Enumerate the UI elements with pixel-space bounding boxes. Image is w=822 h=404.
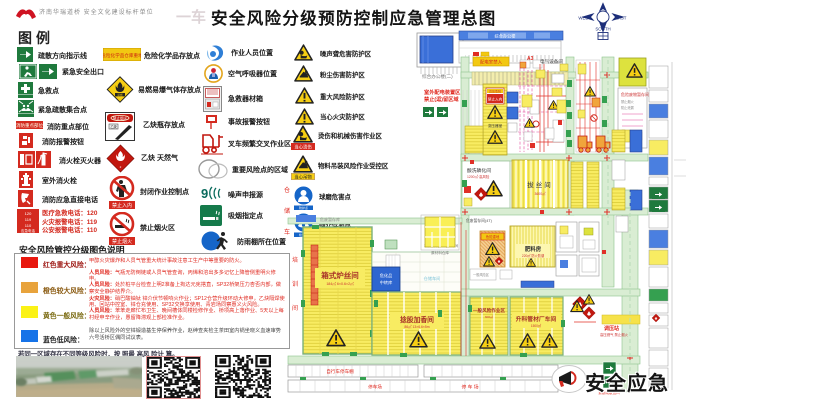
svg-text:高压燃气 禁止烟火: 高压燃气 禁止烟火 — [600, 332, 629, 337]
svg-text:A3: A3 — [527, 56, 534, 62]
svg-text:高压危险: 高压危险 — [489, 88, 501, 93]
svg-text:危险废物暂存间: 危险废物暂存间 — [621, 91, 649, 97]
svg-text:酸洗磷化间: 酸洗磷化间 — [467, 167, 491, 174]
svg-text:SOUTH: SOUTH — [595, 27, 610, 32]
svg-text:600㎡: 600㎡ — [485, 314, 493, 319]
svg-text:变压器室: 变压器室 — [488, 123, 503, 128]
svg-text:拔丝间: 拔丝间 — [527, 180, 553, 189]
svg-text:室外配电装置区: 室外配电装置区 — [424, 88, 461, 96]
svg-text:1200㎡·高风险: 1200㎡·高风险 — [467, 174, 490, 179]
svg-text:1500㎡: 1500㎡ — [531, 323, 542, 328]
svg-text:间: 间 — [292, 304, 298, 312]
svg-text:升科管材厂车间: 升科管材厂车间 — [516, 315, 557, 323]
svg-text:86㎡ 13×6.6×5m: 86㎡ 13×6.6×5m — [404, 324, 429, 329]
svg-text:仓储车间: 仓储车间 — [424, 275, 441, 282]
svg-text:训: 训 — [292, 280, 298, 288]
svg-text:184㎡ 6×0.6×2㎡: 184㎡ 6×0.6×2㎡ — [326, 281, 354, 286]
svg-text:危化品: 危化品 — [380, 272, 393, 279]
svg-text:3600㎡: 3600㎡ — [535, 191, 547, 196]
svg-text:仓: 仓 — [284, 186, 290, 194]
svg-text:调压站: 调压站 — [604, 325, 619, 332]
svg-text:综合办公楼: 综合办公楼 — [495, 33, 516, 40]
svg-text:箱式炉丝间: 箱式炉丝间 — [321, 270, 359, 280]
svg-text:肥料房: 肥料房 — [525, 245, 542, 253]
svg-text:停 车 场: 停 车 场 — [461, 384, 478, 391]
svg-text:配电室禁入: 配电室禁入 — [480, 59, 503, 66]
svg-text:禁止(逗)留区域: 禁止(逗)留区域 — [423, 95, 459, 103]
svg-text:防止泄漏: 防止泄漏 — [621, 105, 634, 110]
svg-text:EAST: EAST — [615, 16, 627, 21]
svg-text:培: 培 — [292, 256, 298, 264]
svg-text:储: 储 — [284, 207, 290, 215]
svg-text:禁止烟火: 禁止烟火 — [621, 99, 635, 104]
svg-text:自行车停车棚: 自行车停车棚 — [326, 368, 354, 375]
svg-text:停车场: 停车场 — [368, 384, 382, 391]
svg-text:WEST: WEST — [578, 16, 591, 21]
svg-text:危险重地: 危险重地 — [486, 234, 500, 239]
svg-text:危废暂存库: 危废暂存库 — [320, 216, 340, 222]
svg-text:220㎡ 防火防潮: 220㎡ 防火防潮 — [522, 253, 544, 258]
svg-text:一般风险作业区: 一般风险作业区 — [473, 307, 506, 314]
svg-text:综合办公楼(二): 综合办公楼(二) — [422, 73, 453, 80]
svg-text:一般风险区: 一般风险区 — [473, 272, 490, 277]
svg-text:禁止入内: 禁止入内 — [488, 97, 503, 102]
svg-text:危废暂存间(4T): 危废暂存间(4T) — [466, 218, 493, 223]
svg-text:捻股加香间: 捻股加香间 — [400, 315, 434, 324]
svg-text:中转库: 中转库 — [380, 279, 393, 286]
svg-text:车: 车 — [284, 228, 290, 236]
svg-text:原材料仓库: 原材料仓库 — [431, 250, 449, 255]
